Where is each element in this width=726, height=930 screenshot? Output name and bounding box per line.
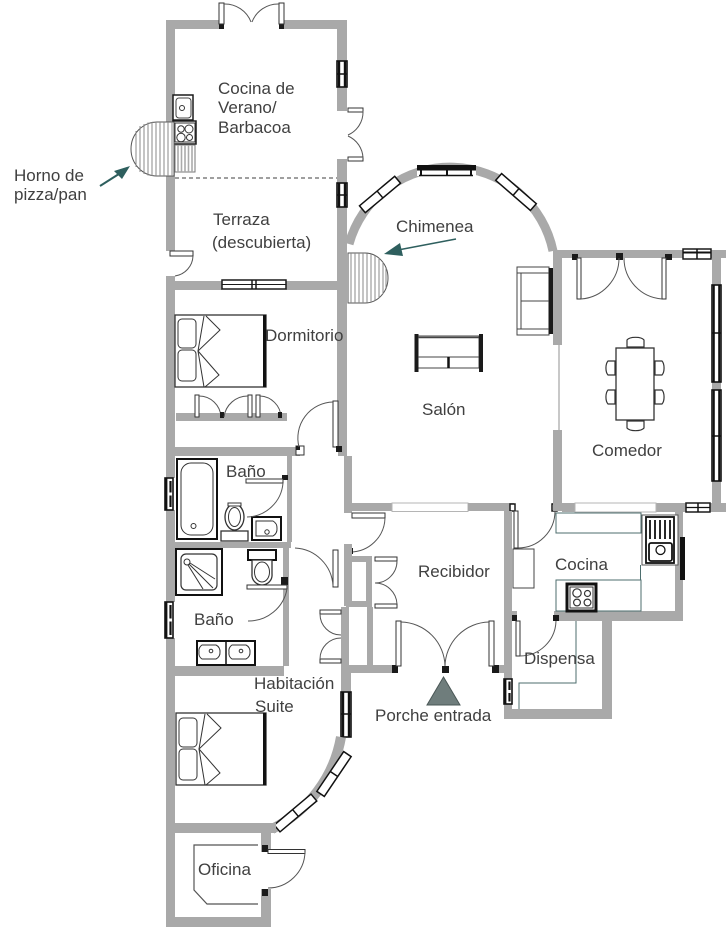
svg-text:Barbacoa: Barbacoa bbox=[218, 118, 291, 137]
svg-text:Horno de: Horno de bbox=[14, 166, 84, 185]
svg-text:Dormitorio: Dormitorio bbox=[265, 326, 343, 345]
svg-text:pizza/pan: pizza/pan bbox=[14, 185, 87, 204]
svg-text:(descubierta): (descubierta) bbox=[212, 233, 311, 252]
svg-text:Cocina de: Cocina de bbox=[218, 79, 295, 98]
svg-text:Salón: Salón bbox=[422, 400, 465, 419]
svg-text:Dispensa: Dispensa bbox=[524, 649, 595, 668]
svg-text:Habitación: Habitación bbox=[254, 674, 334, 693]
svg-text:Oficina: Oficina bbox=[198, 860, 251, 879]
svg-text:Verano/: Verano/ bbox=[218, 98, 277, 117]
svg-text:Suite: Suite bbox=[255, 697, 294, 716]
svg-text:Cocina: Cocina bbox=[555, 555, 608, 574]
svg-text:Recibidor: Recibidor bbox=[418, 562, 490, 581]
svg-text:Baño: Baño bbox=[194, 610, 234, 629]
svg-text:Chimenea: Chimenea bbox=[396, 217, 474, 236]
svg-text:Comedor: Comedor bbox=[592, 441, 662, 460]
svg-text:Porche entrada: Porche entrada bbox=[375, 706, 492, 725]
svg-text:Terraza: Terraza bbox=[213, 210, 270, 229]
svg-text:Baño: Baño bbox=[226, 462, 266, 481]
